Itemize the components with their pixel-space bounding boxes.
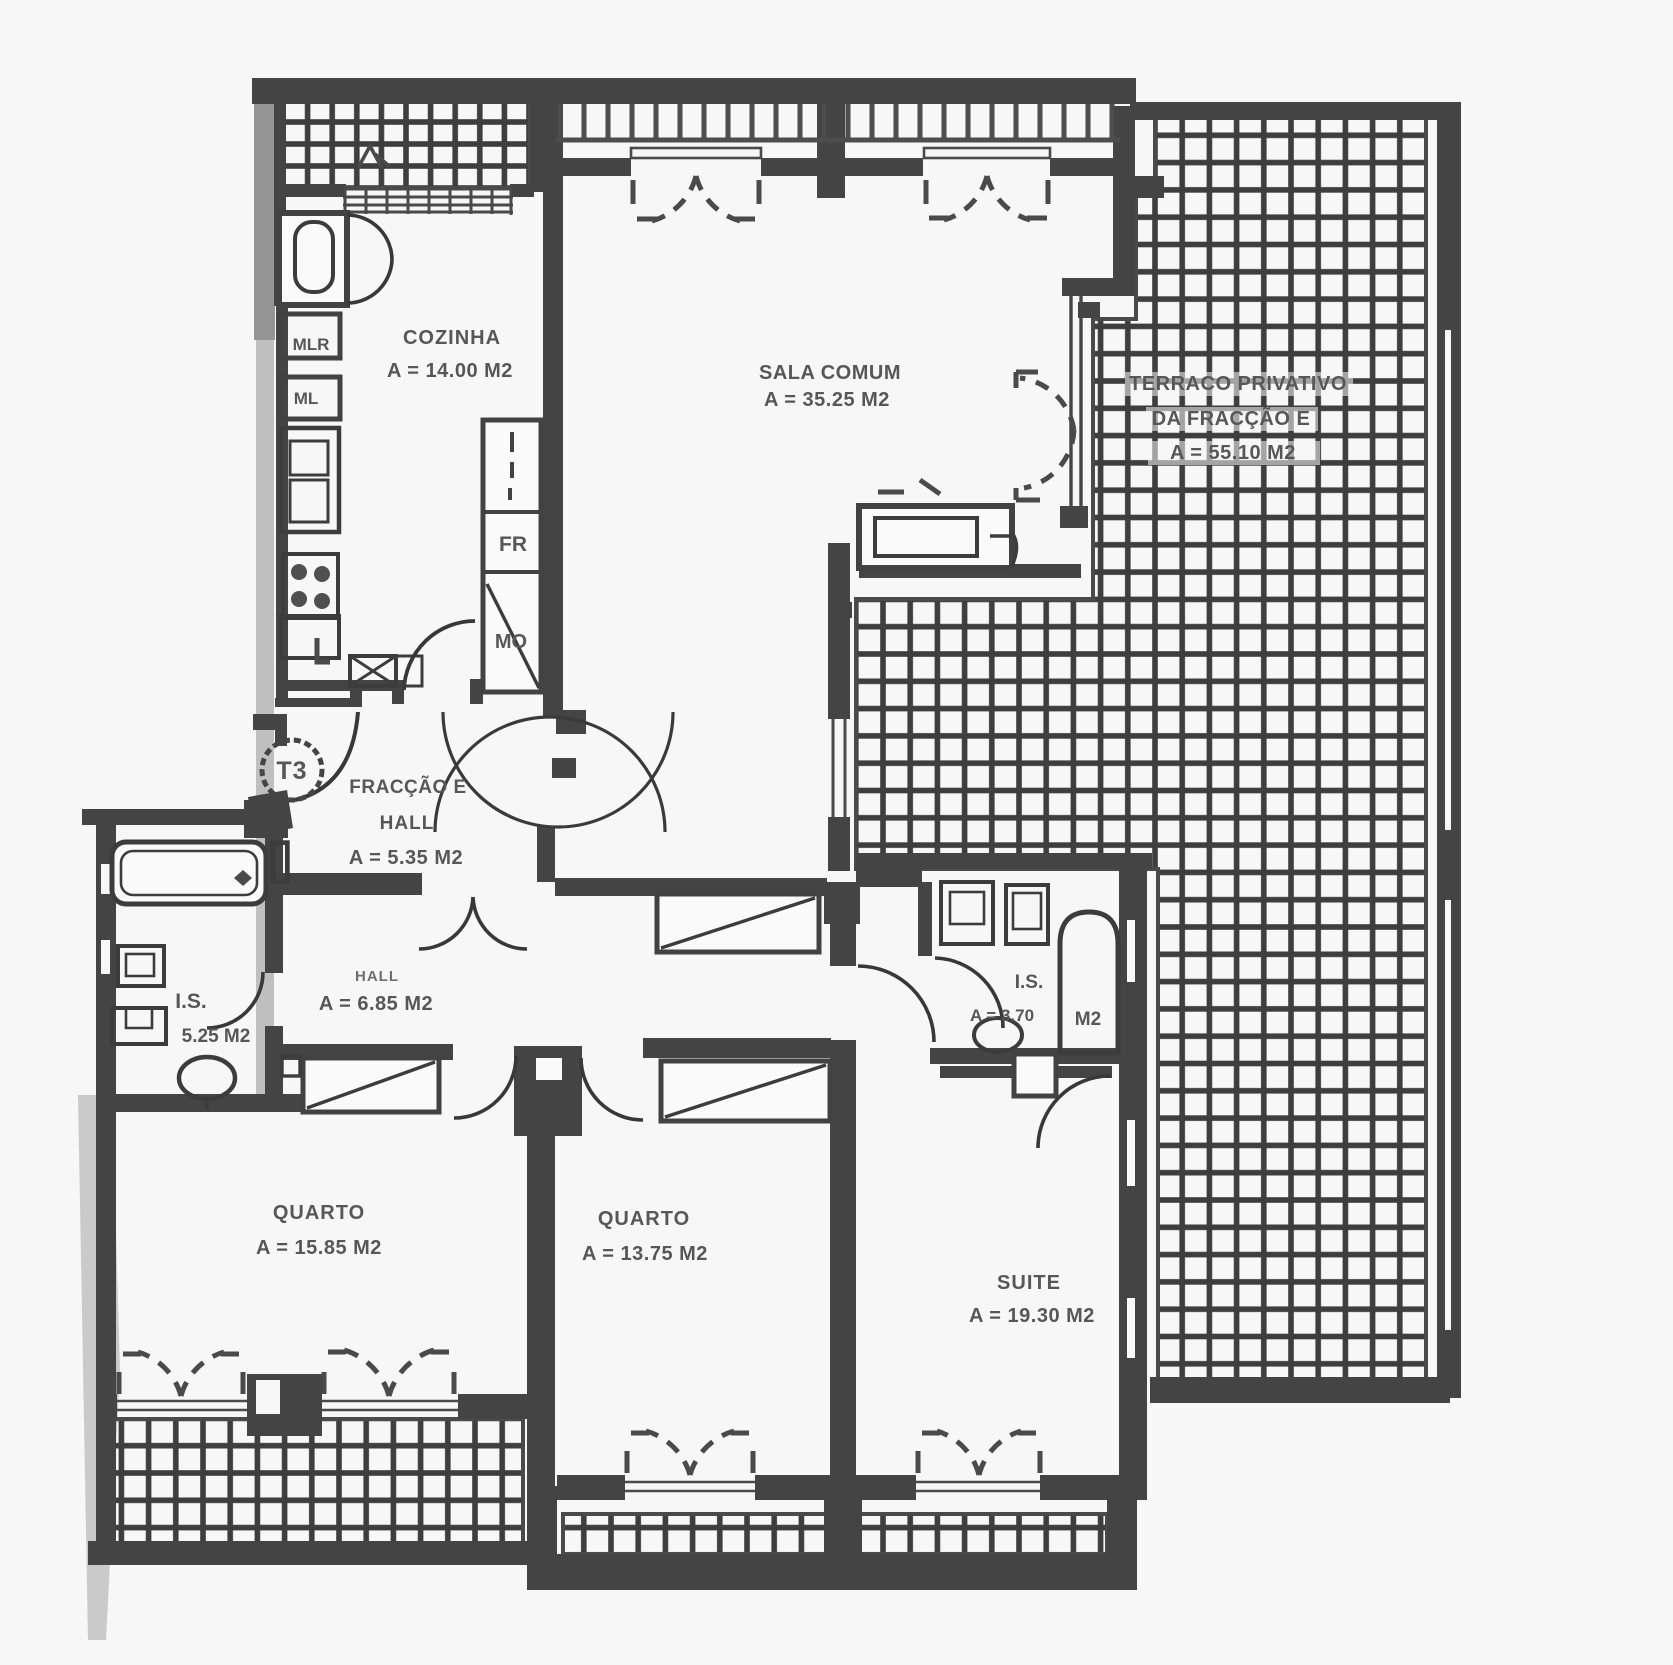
svg-text:COZINHA: COZINHA bbox=[403, 327, 501, 349]
svg-text:A = 6.85 M2: A = 6.85 M2 bbox=[319, 993, 433, 1015]
svg-text:MLR: MLR bbox=[293, 335, 330, 354]
svg-text:SUITE: SUITE bbox=[997, 1272, 1061, 1294]
svg-text:I.S.: I.S. bbox=[175, 990, 207, 1013]
svg-text:QUARTO: QUARTO bbox=[273, 1202, 365, 1224]
svg-text:A = 13.75 M2: A = 13.75 M2 bbox=[582, 1243, 708, 1265]
svg-text:DA FRACÇÃO E: DA FRACÇÃO E bbox=[1152, 407, 1311, 430]
svg-text:ML: ML bbox=[294, 389, 319, 408]
svg-text:FRACÇÃO E: FRACÇÃO E bbox=[349, 776, 466, 798]
svg-text:HALL: HALL bbox=[355, 968, 399, 985]
svg-text:A = 15.85 M2: A = 15.85 M2 bbox=[256, 1237, 382, 1259]
svg-text:A = 5.35 M2: A = 5.35 M2 bbox=[349, 847, 463, 869]
svg-text:A = 19.30 M2: A = 19.30 M2 bbox=[969, 1305, 1095, 1327]
svg-text:M2: M2 bbox=[1075, 1009, 1101, 1030]
svg-text:QUARTO: QUARTO bbox=[598, 1208, 690, 1230]
svg-text:I.S.: I.S. bbox=[1015, 972, 1044, 993]
svg-text:A = 35.25 M2: A = 35.25 M2 bbox=[764, 389, 890, 411]
svg-text:HALL: HALL bbox=[380, 813, 435, 834]
svg-text:MO: MO bbox=[495, 631, 527, 653]
svg-text:TERRACO PRIVATIVO: TERRACO PRIVATIVO bbox=[1129, 373, 1347, 395]
svg-text:T3: T3 bbox=[276, 757, 307, 785]
svg-text:5.25 M2: 5.25 M2 bbox=[182, 1026, 251, 1047]
svg-text:A = 14.00 M2: A = 14.00 M2 bbox=[387, 360, 513, 382]
svg-text:A = 3.70: A = 3.70 bbox=[970, 1006, 1034, 1025]
svg-text:A = 55.10 M2: A = 55.10 M2 bbox=[1170, 442, 1296, 464]
svg-text:FR: FR bbox=[499, 533, 527, 556]
svg-text:SALA COMUM: SALA COMUM bbox=[759, 362, 901, 384]
